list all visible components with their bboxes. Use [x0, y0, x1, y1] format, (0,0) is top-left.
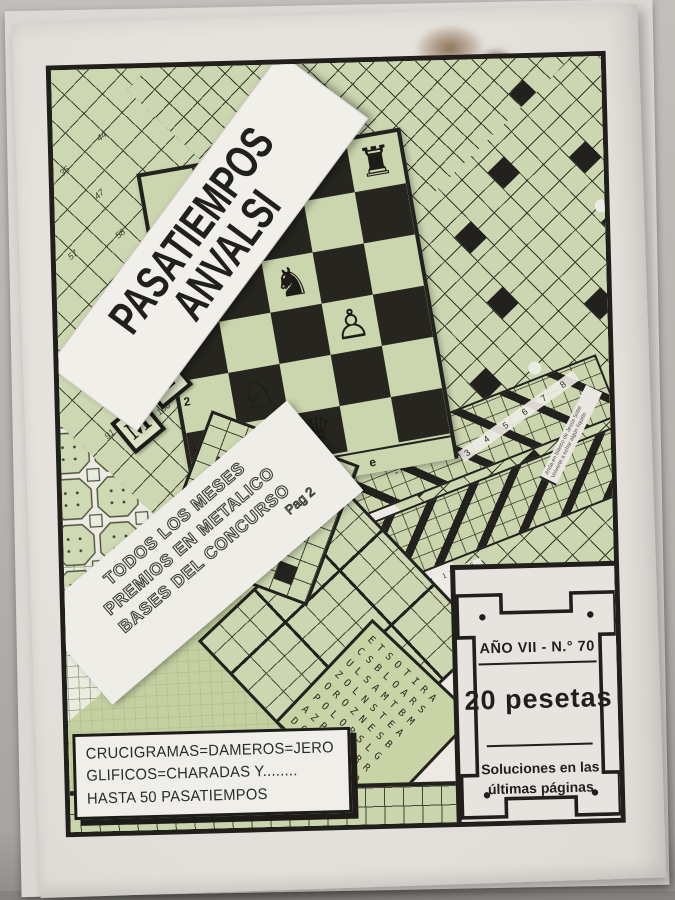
- damero-number: 35: [57, 164, 71, 178]
- damero-number: 44: [95, 129, 109, 143]
- collage-frame: 3544475758606165697173757680818384879194…: [46, 51, 626, 837]
- damero-number: 57: [66, 248, 80, 262]
- chess-rank-label: 2: [182, 394, 191, 409]
- badge-price: 20 pesetas: [457, 682, 620, 717]
- contents-box: CRUCIGRAMAS=DAMEROS=JERO GLIFICOS=CHARAD…: [72, 727, 352, 820]
- photo-background: 3544475758606165697173757680818384879194…: [0, 0, 675, 900]
- chess-piece: ♙: [322, 295, 382, 355]
- chess-piece: ♜: [346, 132, 406, 192]
- chess-piece: ♞: [261, 252, 321, 312]
- damero-number: 47: [92, 187, 106, 201]
- issue-badge: AÑO VII - N.° 70 20 pesetas Soluciones e…: [455, 590, 623, 820]
- damero-number: 58: [113, 227, 127, 241]
- magazine-cover: 3544475758606165697173757680818384879194…: [12, 4, 667, 898]
